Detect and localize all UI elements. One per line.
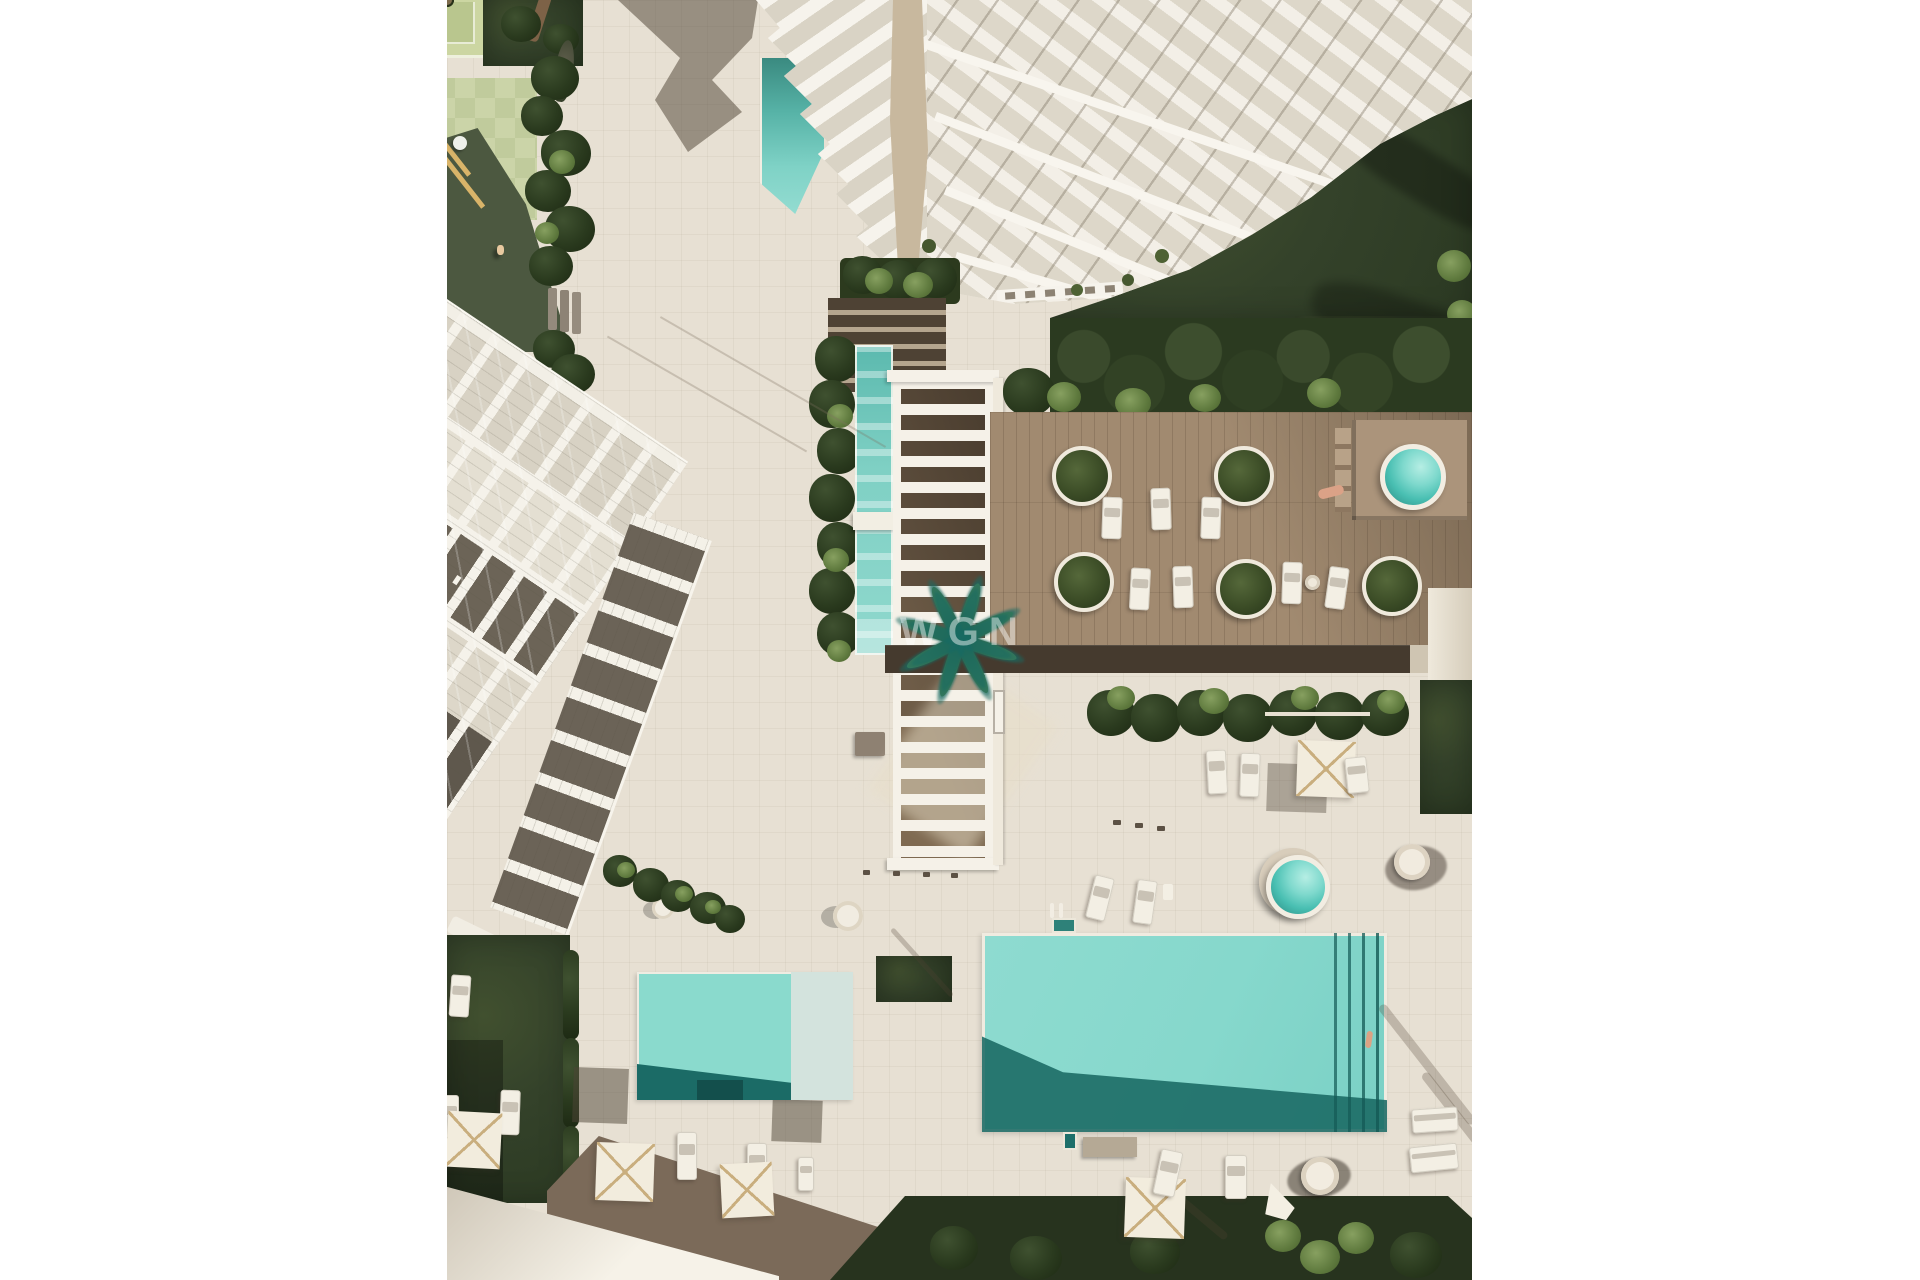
- paving-marker: [1135, 823, 1143, 828]
- sun-lounger: [1206, 750, 1228, 795]
- hedge-row-bush: [1315, 692, 1365, 740]
- deck-lounger: [1101, 497, 1122, 540]
- sun-lounger: [1344, 756, 1370, 794]
- hedge-row-leaves: [1377, 690, 1405, 714]
- deck-lounger: [1172, 566, 1193, 609]
- tree-canopy: [501, 6, 541, 42]
- hedge-row-bush: [1223, 694, 1273, 742]
- paving-marker: [863, 870, 870, 875]
- sun-lounger-horizontal: [1411, 1106, 1459, 1133]
- sun-lounger: [449, 974, 472, 1017]
- leaf-cluster: [1047, 382, 1081, 412]
- side-table: [1305, 575, 1320, 590]
- palm-planter: [1054, 552, 1114, 612]
- main-pool: [982, 933, 1387, 1132]
- white-tower: [597, 0, 1472, 364]
- spa-steps: [1335, 428, 1351, 512]
- sun-lounger: [1239, 753, 1261, 798]
- deck-lounger: [1200, 497, 1221, 540]
- leaf-cluster: [549, 150, 575, 174]
- hanging-chair: [1301, 1157, 1339, 1195]
- swing-top: [453, 136, 467, 150]
- render-page: WGN: [0, 0, 1920, 1280]
- planter-edge: [1265, 712, 1370, 716]
- base-planter-leaves: [617, 862, 635, 878]
- garden-leaves: [1300, 1240, 1340, 1274]
- bench: [548, 288, 557, 330]
- garden-leaves: [1338, 1222, 1374, 1254]
- pergola-gate: [993, 690, 1005, 734]
- towel: [1163, 884, 1173, 900]
- deck-lounger: [1324, 566, 1350, 610]
- child-figure: [497, 245, 504, 255]
- wooden-deck: [990, 412, 1472, 650]
- lap-pool-reflections: [855, 345, 893, 655]
- leaf-cluster: [1307, 378, 1341, 408]
- parasol-shadow: [572, 1067, 629, 1124]
- garden-bush: [1010, 1236, 1062, 1280]
- paving-marker: [1113, 820, 1121, 825]
- planter-leaves: [865, 268, 893, 294]
- palm-planter: [1214, 446, 1274, 506]
- palm-planter: [1362, 556, 1422, 616]
- pergola-cap-bottom: [887, 858, 999, 870]
- sun-lounger: [677, 1132, 697, 1180]
- pool-lap-line: [1334, 933, 1337, 1132]
- round-spa: [1380, 444, 1446, 510]
- hedge-row-leaves: [1291, 686, 1319, 710]
- hanging-chair: [1394, 844, 1430, 880]
- sun-lounger: [798, 1157, 814, 1191]
- deck-lounger: [1150, 488, 1171, 531]
- pool-light-shelf: [791, 972, 853, 1100]
- parasol-shadow: [771, 1099, 822, 1143]
- pool-lap-line: [1362, 933, 1365, 1132]
- pool-bench: [855, 732, 885, 756]
- parasol: [720, 1162, 775, 1219]
- hedge-row-bush: [1131, 694, 1181, 742]
- lawn-hedge-strip: [563, 950, 579, 1040]
- green-roof-panel: [447, 2, 475, 44]
- garden-bush: [1390, 1232, 1442, 1278]
- deck-lounger: [1129, 568, 1151, 611]
- pool-ladder-rail: [1059, 903, 1063, 918]
- base-planter-leaves: [705, 900, 721, 914]
- garden-bush: [930, 1226, 978, 1270]
- pool-lap-line: [1348, 933, 1351, 1132]
- paving-marker: [951, 873, 958, 878]
- paving-marker: [893, 871, 900, 876]
- hedge-bush: [531, 56, 579, 100]
- pool-deep-sweep: [982, 933, 1387, 1132]
- lap-pool-hedge: [809, 568, 855, 614]
- white-wall-strip: [1428, 588, 1472, 680]
- hedge-row-leaves: [1107, 686, 1135, 710]
- tower-shadow: [618, 0, 758, 152]
- lap-pool-hedge: [809, 474, 855, 522]
- deck-hedge-band: [1050, 318, 1472, 414]
- base-planter-leaves: [675, 886, 693, 902]
- pool-side-platform: [1083, 1137, 1137, 1157]
- lawn-strip-right: [1420, 680, 1472, 814]
- palm-planter: [1216, 559, 1276, 619]
- leaf-cluster: [535, 222, 559, 244]
- bench: [560, 290, 569, 332]
- hedge-bush: [529, 246, 573, 286]
- parasol: [447, 1111, 502, 1170]
- watermark: WGN: [900, 610, 1028, 655]
- paving-marker: [923, 872, 930, 877]
- garden-leaves: [1265, 1220, 1301, 1252]
- lap-pool-hedge: [815, 336, 859, 382]
- pergola-cap-top: [887, 370, 999, 382]
- planter-leaves: [903, 272, 933, 298]
- sun-lounger-horizontal: [1409, 1143, 1459, 1174]
- leaf-cluster: [1189, 384, 1221, 412]
- pool-lap-line: [1376, 933, 1379, 1132]
- deck-lounger: [1281, 562, 1302, 605]
- secondary-pool: [637, 972, 853, 1100]
- paving-marker: [1157, 826, 1165, 831]
- terrace-furniture: [452, 575, 461, 585]
- sun-lounger: [1132, 879, 1158, 925]
- lap-pool: [855, 345, 893, 655]
- round-jacuzzi: [1266, 855, 1330, 919]
- pool-entry-step: [1052, 918, 1076, 933]
- sun-lounger: [1085, 874, 1115, 922]
- round-daybed: [833, 901, 863, 931]
- pool-step-notch: [697, 1080, 743, 1100]
- aerial-render: WGN: [447, 0, 1472, 1280]
- hedge-texture: [1050, 318, 1472, 414]
- swimmer: [1365, 1031, 1373, 1049]
- lap-pool-leaves: [823, 548, 849, 572]
- pool-ladder-rail: [1050, 903, 1054, 918]
- pool-step-south: [1063, 1132, 1077, 1150]
- lap-pool-divider: [853, 512, 895, 530]
- sun-lounger: [1225, 1155, 1247, 1199]
- hedge-row-leaves: [1199, 688, 1229, 714]
- bench: [572, 292, 581, 334]
- parasol: [595, 1142, 655, 1202]
- lap-pool-leaves: [827, 640, 851, 662]
